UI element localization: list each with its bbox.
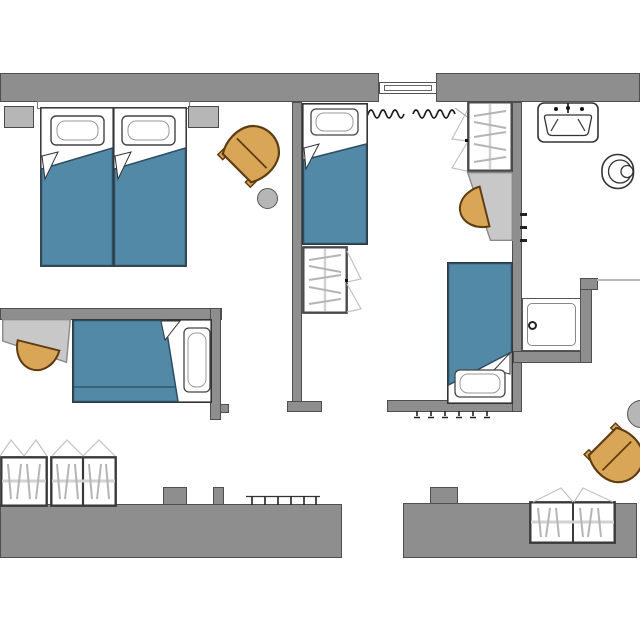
wardrobe-bl-1 xyxy=(0,456,48,507)
window-pane xyxy=(384,85,432,91)
shower-drain xyxy=(528,321,537,330)
wall-shower-hook xyxy=(580,278,598,290)
wardrobe-bl-1-doors xyxy=(0,438,48,457)
wardrobe-bl-2-doors xyxy=(50,438,117,457)
tub-armchair-left xyxy=(212,105,300,193)
wall-top-right xyxy=(436,73,640,102)
wall-pillar-2 xyxy=(213,487,224,505)
radiator-hallway xyxy=(413,411,495,421)
wall-hook-1 xyxy=(520,213,527,216)
wardrobe-hinge-dot xyxy=(465,139,468,142)
closet-hinge-dot xyxy=(345,279,348,282)
closet-door-folds xyxy=(346,248,364,314)
wall-hook-2 xyxy=(520,226,527,229)
bed-left-b xyxy=(113,107,187,267)
closet-hangers xyxy=(302,246,348,314)
glass-partition-line xyxy=(597,279,640,281)
wall-door-jamb-tab xyxy=(220,404,229,413)
wall-shower-right xyxy=(580,278,592,363)
bed-left-a xyxy=(40,107,114,267)
wardrobe-hangers-top xyxy=(467,101,513,172)
wall-pillar-3 xyxy=(430,487,458,504)
bed-bottom-left xyxy=(72,319,212,403)
bed-middle-top xyxy=(302,103,368,245)
wall-bathroom-left xyxy=(512,102,522,412)
wardrobe-br-doors xyxy=(530,485,616,503)
wall-bathroom-bottom xyxy=(513,351,590,363)
bed-middle-bottom xyxy=(447,262,513,404)
side-table-lounge xyxy=(627,400,640,428)
sink-icon xyxy=(537,101,600,144)
tub-armchair-icon xyxy=(212,105,300,193)
nightstand-right xyxy=(188,106,219,128)
side-table-left xyxy=(257,188,278,209)
floor-plan xyxy=(0,0,640,640)
wall-top-left xyxy=(0,73,379,102)
toilet-icon xyxy=(601,153,635,190)
wall-divider-foot xyxy=(287,401,322,412)
wall-bottom-left xyxy=(0,504,342,558)
wardrobe-bl-2 xyxy=(50,456,117,507)
wardrobe-br xyxy=(529,501,616,544)
wall-pillar-1 xyxy=(163,487,187,505)
nightstand-left xyxy=(4,106,34,128)
wall-hook-3 xyxy=(520,239,527,242)
radiator-bottom-left xyxy=(245,495,321,506)
